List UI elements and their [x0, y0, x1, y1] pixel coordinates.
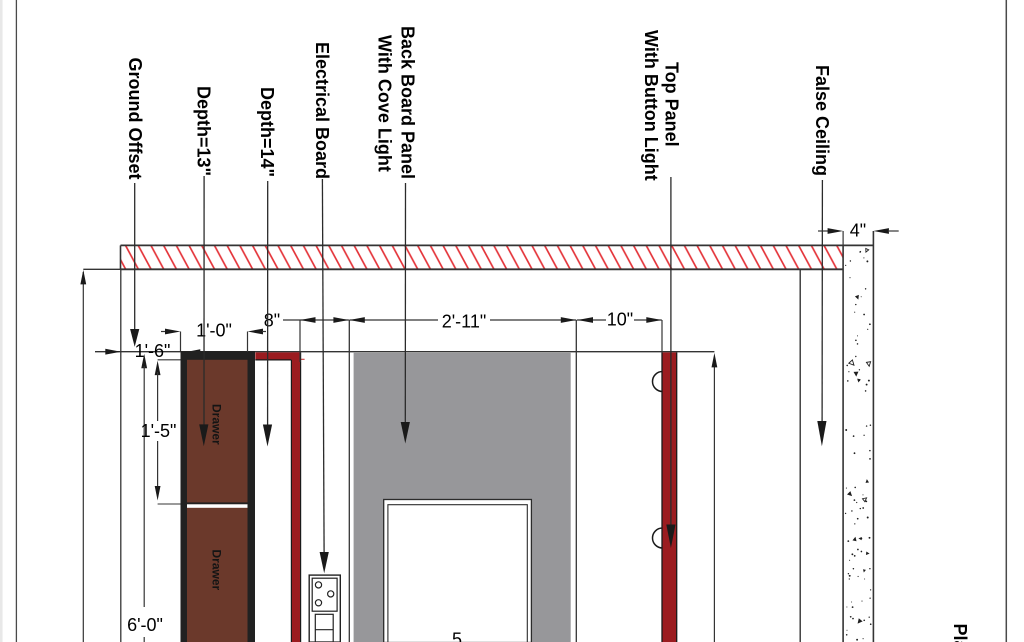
svg-text:Drawer: Drawer	[210, 404, 224, 445]
svg-text:6'-0": 6'-0"	[127, 615, 163, 635]
svg-text:2'-11": 2'-11"	[442, 312, 487, 332]
svg-text:False Ceiling: False Ceiling	[812, 65, 832, 176]
svg-text:10": 10"	[607, 310, 633, 330]
svg-text:Plan: Plan	[950, 624, 970, 642]
svg-text:8": 8"	[264, 311, 280, 331]
svg-text:With Button Light: With Button Light	[641, 30, 661, 181]
svg-text:1'-5": 1'-5"	[141, 421, 177, 441]
svg-text:1'-6": 1'-6"	[135, 341, 171, 361]
svg-text:Ground Offset: Ground Offset	[125, 58, 145, 180]
svg-text:Electrical Board: Electrical Board	[312, 42, 332, 179]
svg-text:With Cove Light: With Cove Light	[375, 35, 395, 172]
svg-text:Depth=13": Depth=13"	[194, 86, 214, 176]
svg-text:1'-0": 1'-0"	[196, 321, 232, 341]
svg-text:Back Board Panel: Back Board Panel	[398, 26, 418, 179]
svg-text:5: 5	[452, 630, 462, 642]
svg-text:Drawer: Drawer	[210, 550, 224, 591]
svg-text:4": 4"	[850, 221, 866, 241]
svg-text:Depth=14": Depth=14"	[257, 87, 277, 177]
svg-text:Top Panel: Top Panel	[661, 62, 681, 147]
